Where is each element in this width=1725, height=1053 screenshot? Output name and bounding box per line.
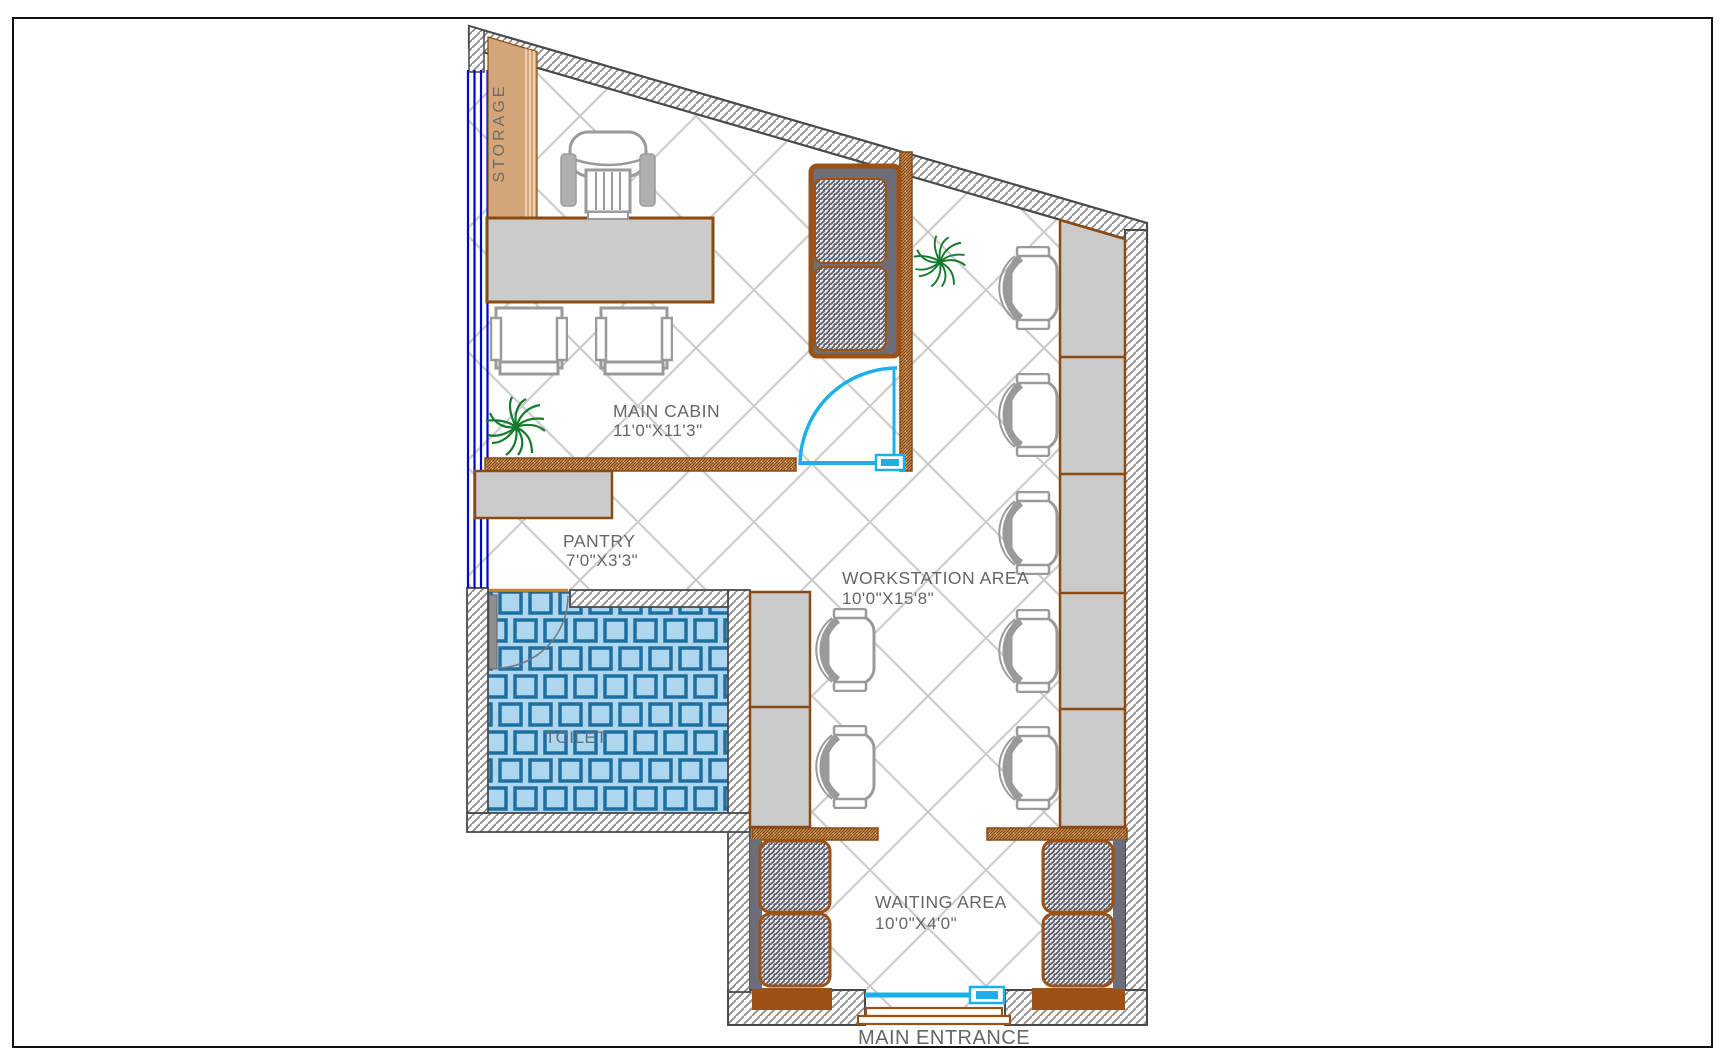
- label-workstation-dims: 10'0"X15'8": [842, 589, 934, 608]
- pantry-counter: [475, 471, 612, 518]
- toilet-tile-floor: [488, 592, 728, 813]
- wall-cabin-right: [900, 152, 912, 471]
- guest-chair: [491, 308, 567, 374]
- wall-cabin-bottom: [485, 458, 796, 471]
- wall-waiting-left: [728, 590, 750, 992]
- workstation-desk-left-column: [750, 592, 810, 827]
- toilet-door-panel: [489, 595, 497, 669]
- label-waiting-dims: 10'0"X4'0": [875, 914, 957, 933]
- wall-toilet-top: [570, 590, 728, 607]
- label-pantry-dims: 7'0"X3'3": [566, 551, 638, 570]
- label-main-entrance: MAIN ENTRANCE: [858, 1027, 1030, 1049]
- floor-plan-drawing: MAIN CABIN 11'0"X11'3" PANTRY 7'0"X3'3" …: [0, 0, 1725, 1053]
- wall-toilet-bottom: [467, 813, 750, 832]
- executive-desk: [487, 218, 713, 302]
- wall-left-stub: [469, 26, 484, 72]
- floor-plan-canvas: MAIN CABIN 11'0"X11'3" PANTRY 7'0"X3'3" …: [0, 0, 1725, 1053]
- guest-chair: [596, 308, 672, 374]
- label-main-cabin-dims: 11'0"X11'3": [613, 421, 703, 440]
- wall-waiting-divider-right: [987, 828, 1127, 840]
- workstation-desk-right-column: [1060, 220, 1125, 827]
- wall-waiting-divider-left: [752, 828, 878, 840]
- label-pantry: PANTRY: [563, 531, 635, 551]
- label-main-cabin: MAIN CABIN: [613, 401, 720, 421]
- waiting-sofa-left: [750, 839, 830, 989]
- wall-right: [1125, 230, 1147, 1025]
- entrance-threshold: [858, 1008, 1010, 1024]
- label-workstation: WORKSTATION AREA: [842, 568, 1029, 588]
- entrance-side-block-left: [752, 988, 832, 1010]
- cabin-door-handle-grip: [881, 459, 899, 466]
- label-storage: STORAGE: [491, 84, 508, 183]
- label-waiting: WAITING AREA: [875, 892, 1007, 912]
- label-toilet: TOILET: [545, 728, 607, 747]
- wall-toilet-left: [467, 588, 488, 813]
- entrance-door-handle-grip: [976, 991, 998, 999]
- entrance-side-block-right: [1032, 988, 1125, 1010]
- cabin-sofa: [811, 166, 899, 356]
